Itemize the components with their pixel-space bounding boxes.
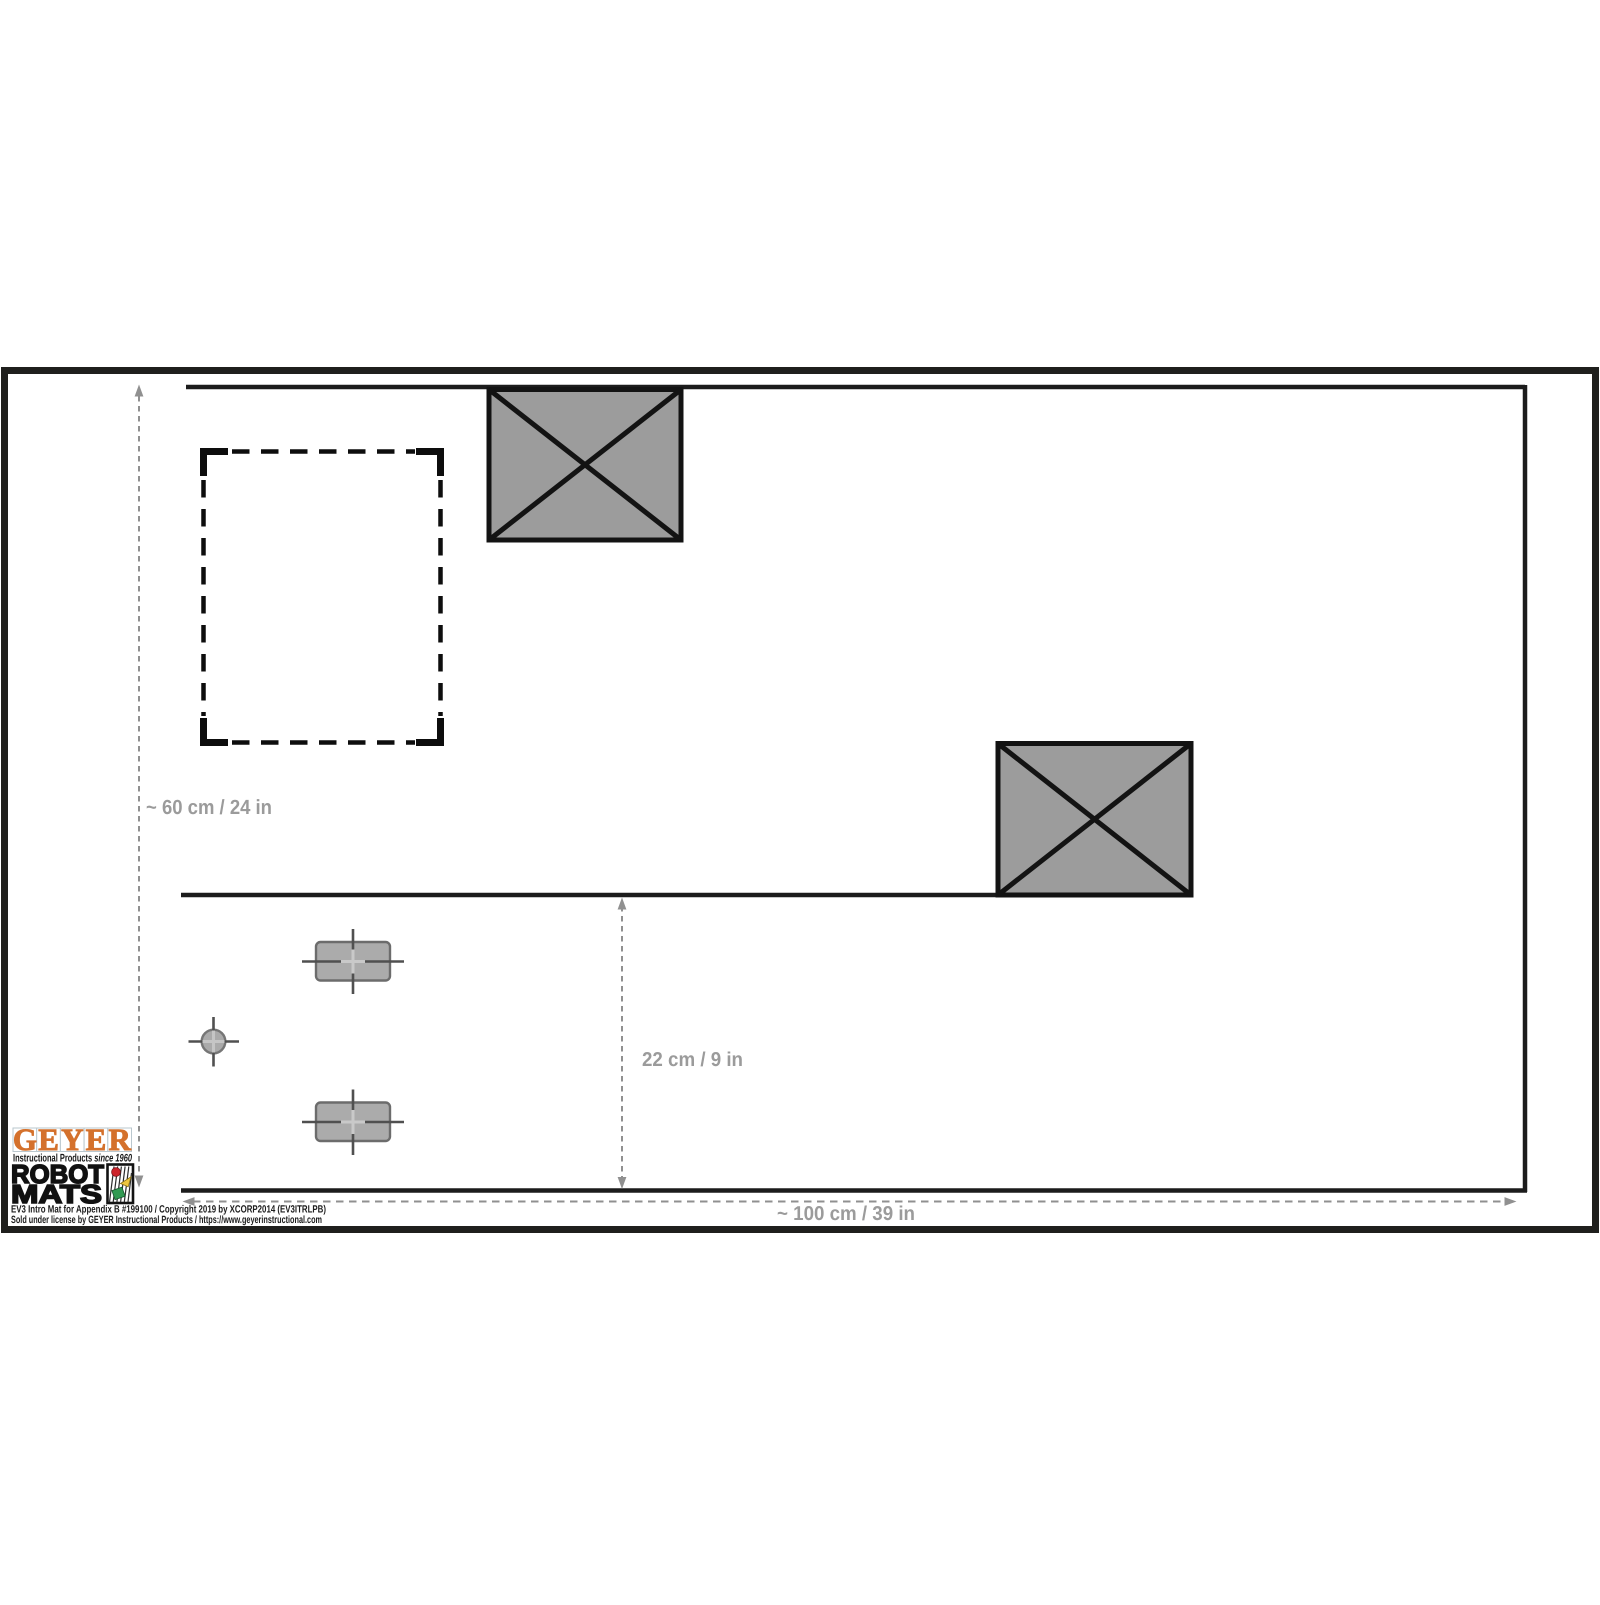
svg-text:~ 100 cm / 39 in: ~ 100 cm / 39 in <box>777 1203 915 1225</box>
svg-text:Sold under license by GEYER In: Sold under license by GEYER Instructiona… <box>11 1214 322 1226</box>
svg-text:22 cm / 9 in: 22 cm / 9 in <box>642 1049 743 1071</box>
svg-text:~ 60 cm / 24 in: ~ 60 cm / 24 in <box>146 796 272 819</box>
